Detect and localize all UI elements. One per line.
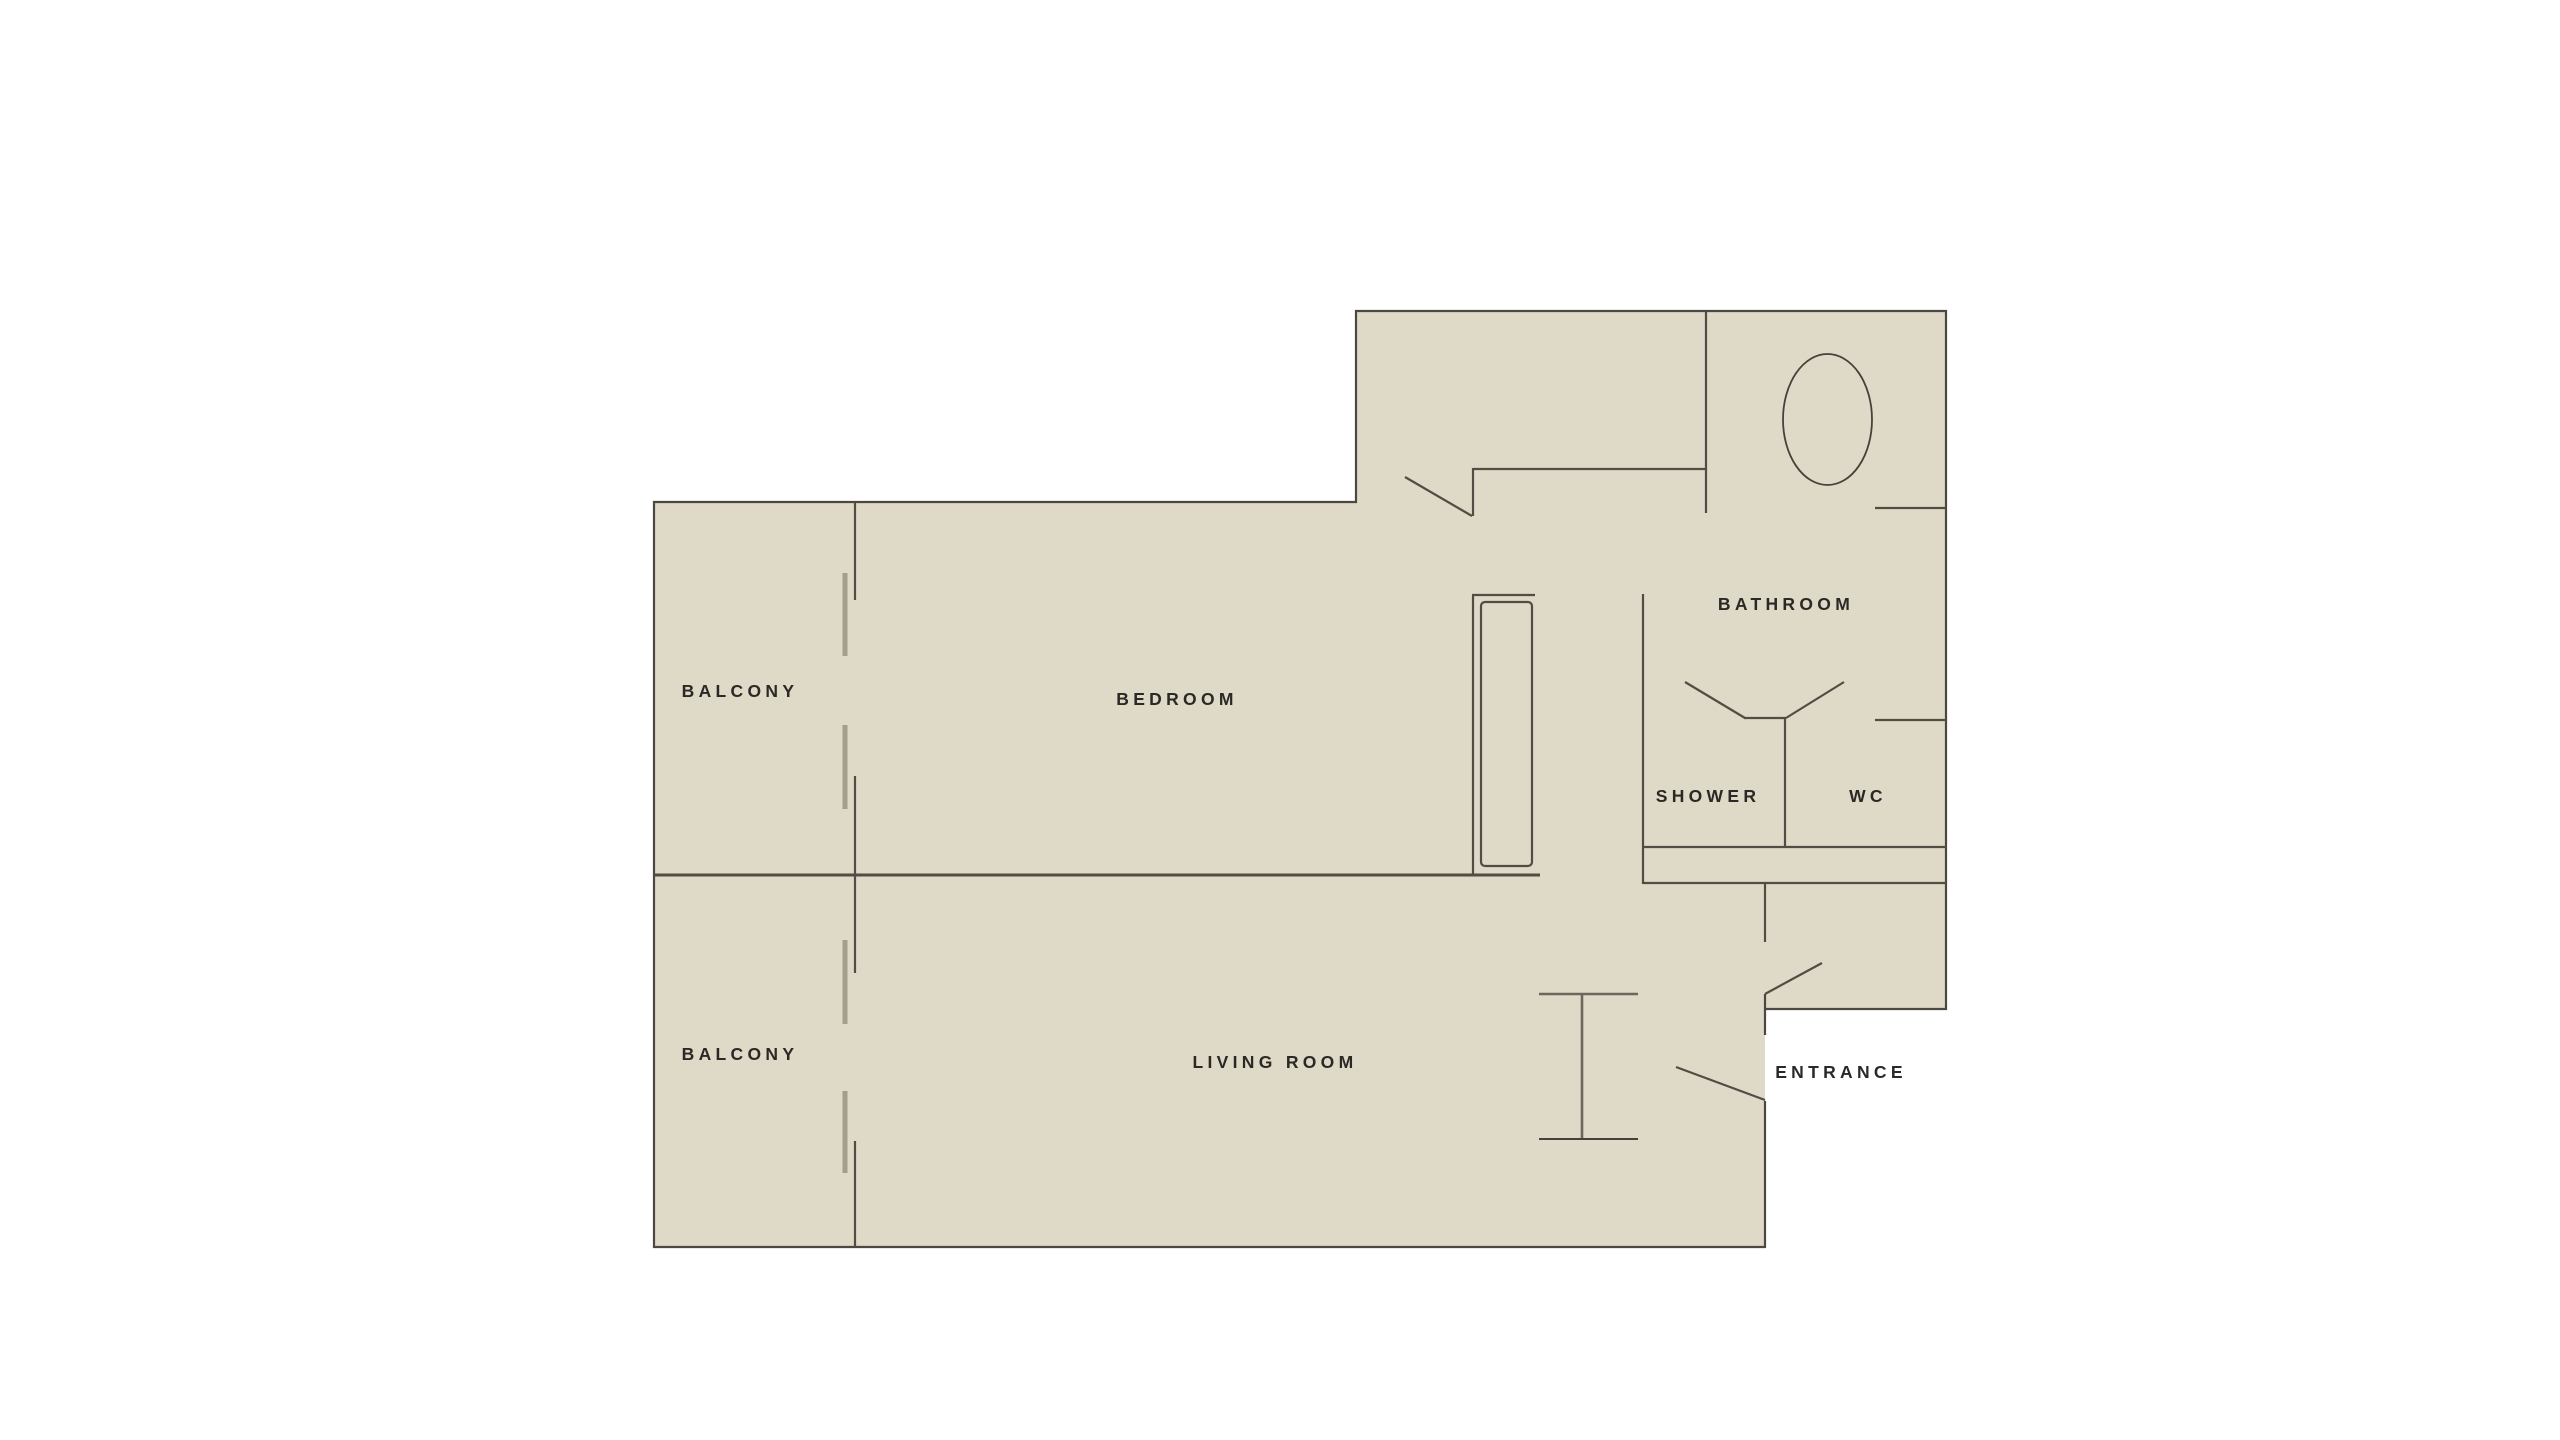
svg-text:ENTRANCE: ENTRANCE (1775, 1062, 1907, 1082)
svg-text:BALCONY: BALCONY (682, 681, 799, 701)
svg-text:SHOWER: SHOWER (1656, 786, 1761, 806)
svg-text:BATHROOM: BATHROOM (1718, 594, 1854, 614)
svg-text:WC: WC (1849, 786, 1887, 806)
svg-text:BALCONY: BALCONY (682, 1044, 799, 1064)
svg-text:BEDROOM: BEDROOM (1116, 689, 1238, 709)
svg-text:LIVING ROOM: LIVING ROOM (1193, 1052, 1358, 1072)
